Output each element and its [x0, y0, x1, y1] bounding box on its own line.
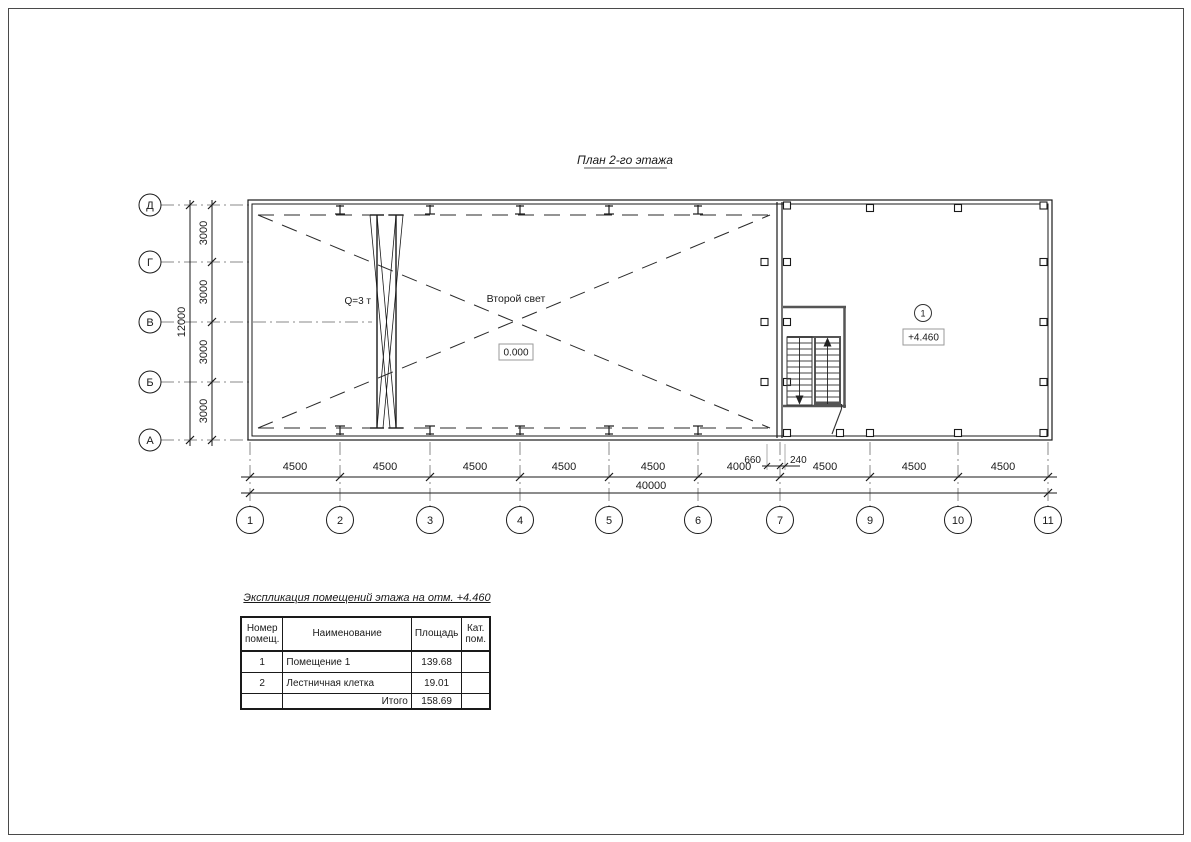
- crane-symbol: [370, 215, 403, 428]
- cell-empty: [241, 694, 283, 710]
- dim-row-4: 3000: [198, 399, 210, 423]
- dim-offset-240: 240: [790, 455, 807, 466]
- offset-dims: 660 240: [744, 444, 807, 470]
- cell-total-label: Итого: [283, 694, 411, 710]
- plan-title: План 2-го этажа: [577, 153, 673, 167]
- void-label: Второй свет: [487, 293, 546, 305]
- floor-plan-drawing: План 2-го этажа 12000 3000 3000 3000 30: [0, 0, 1191, 842]
- cell-room-area: 19.01: [411, 673, 462, 694]
- table-row: 1 Помещение 1 139.68: [241, 651, 490, 673]
- row-bubble-a: А: [146, 435, 154, 447]
- col-bubble-7: 7: [777, 515, 783, 527]
- row-bubble-b: Б: [146, 377, 153, 389]
- header-name: Наименование: [283, 617, 411, 651]
- table-row: 2 Лестничная клетка 19.01: [241, 673, 490, 694]
- col-bubble-2: 2: [337, 515, 343, 527]
- cell-room-area: 139.68: [411, 651, 462, 673]
- steel-column-icons: [335, 205, 703, 435]
- staircase: [783, 306, 846, 434]
- stair-direction-arrows: [796, 338, 831, 404]
- col-bubble-6: 6: [695, 515, 701, 527]
- dim-row-2: 3000: [198, 280, 210, 304]
- building-walls: [248, 200, 1052, 440]
- dim-col-7: 4500: [813, 461, 837, 473]
- row-axis-bubbles: Д Г В Б А: [139, 194, 161, 451]
- col-bubble-1: 1: [247, 515, 253, 527]
- dim-row-total: 12000: [176, 307, 188, 338]
- explication-section: Экспликация помещений этажа на отм. +4.4…: [240, 592, 494, 710]
- stair-treads: [787, 343, 840, 397]
- row-axis-lines: [161, 205, 372, 440]
- dim-col-total: 40000: [636, 480, 667, 492]
- level-mark-ground: 0.000: [503, 348, 528, 359]
- header-area: Площадь: [411, 617, 462, 651]
- header-room-number: Номер помещ.: [241, 617, 283, 651]
- col-bubble-9: 9: [867, 515, 873, 527]
- row-bubble-v: В: [146, 317, 153, 329]
- dim-row-3: 3000: [198, 340, 210, 364]
- cell-empty: [462, 694, 490, 710]
- col-bubble-5: 5: [606, 515, 612, 527]
- cell-room-cat: [462, 673, 490, 694]
- dim-col-2: 4500: [373, 461, 397, 473]
- level-mark-floor: +4.460: [908, 333, 939, 344]
- dim-col-8: 4500: [902, 461, 926, 473]
- explication-title: Экспликация помещений этажа на отм. +4.4…: [240, 592, 494, 604]
- explication-table: Номер помещ. Наименование Площадь Кат. п…: [240, 616, 491, 710]
- table-total-row: Итого 158.69: [241, 694, 490, 710]
- room-number-tag: 1: [920, 309, 925, 319]
- dim-col-4: 4500: [552, 461, 576, 473]
- dim-offset-660: 660: [744, 455, 761, 466]
- dim-col-5: 4500: [641, 461, 665, 473]
- col-bubble-11: 11: [1042, 515, 1053, 527]
- col-bubble-4: 4: [517, 515, 523, 527]
- cell-room-number: 2: [241, 673, 283, 694]
- row-bubble-g: Г: [147, 257, 153, 269]
- bottom-dimensions: 4500 4500 4500 4500 4500 4000 4500 4500 …: [241, 444, 1057, 497]
- dim-row-1: 3000: [198, 221, 210, 245]
- col-bubble-3: 3: [427, 515, 433, 527]
- col-axis-lines: [250, 442, 1048, 506]
- drawing-sheet: План 2-го этажа 12000 3000 3000 3000 30: [0, 0, 1191, 842]
- col-axis-bubbles: 1 2 3 4 5 6 7 9 10 11: [237, 507, 1062, 534]
- cell-room-cat: [462, 651, 490, 673]
- col-bubble-10: 10: [952, 515, 964, 527]
- dim-col-1: 4500: [283, 461, 307, 473]
- left-dimensions: 12000 3000 3000 3000 3000: [176, 200, 216, 446]
- cell-room-name: Лестничная клетка: [283, 673, 411, 694]
- row-bubble-d: Д: [146, 200, 154, 212]
- dim-col-9: 4500: [991, 461, 1015, 473]
- square-column-markers: [761, 202, 1047, 437]
- explication-header-row: Номер помещ. Наименование Площадь Кат. п…: [241, 617, 490, 651]
- cell-room-name: Помещение 1: [283, 651, 411, 673]
- dim-col-3: 4500: [463, 461, 487, 473]
- crane-capacity-label: Q=3 т: [344, 296, 371, 307]
- cell-room-number: 1: [241, 651, 283, 673]
- header-category: Кат. пом.: [462, 617, 490, 651]
- cell-total-value: 158.69: [411, 694, 462, 710]
